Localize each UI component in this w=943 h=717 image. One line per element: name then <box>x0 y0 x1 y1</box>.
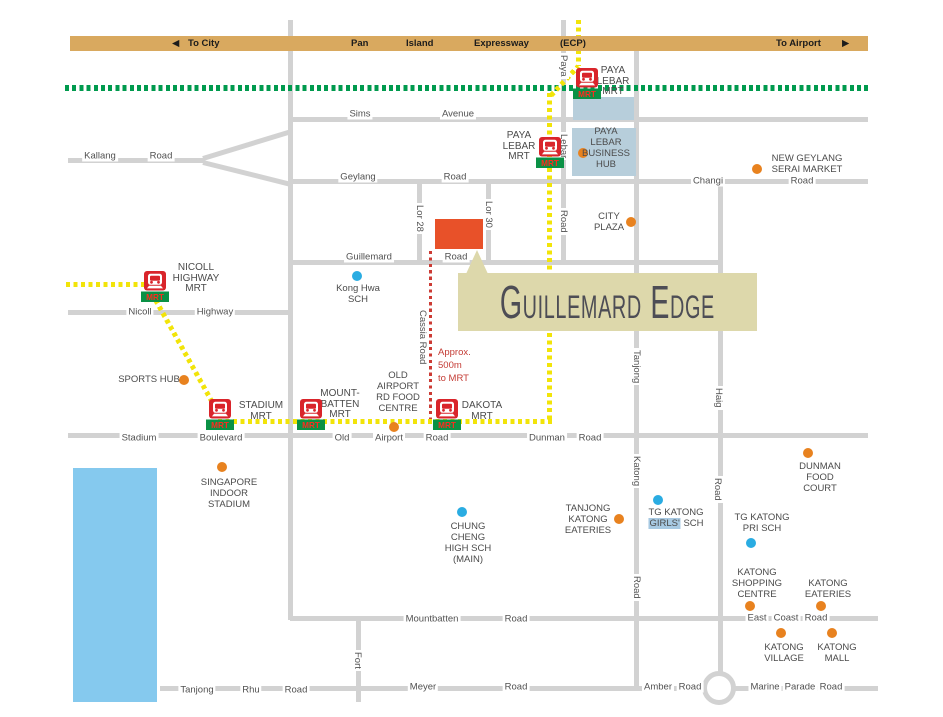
svg-text:MRT: MRT <box>578 90 596 99</box>
svg-text:MRT: MRT <box>211 421 229 430</box>
road-label-road: Road <box>442 172 469 183</box>
expressway-name-expressway: Expressway <box>474 36 529 51</box>
road-kallang-fork-upper <box>202 129 291 161</box>
expressway-band: ◀ To City Pan Island Expressway (ECP) To… <box>70 36 868 51</box>
old-airport-rd-food-centre-label: OLDAIRPORTRD FOODCENTRE <box>376 370 420 414</box>
road-aljunied-road <box>288 20 293 620</box>
road-label-road: Road <box>148 151 175 162</box>
road-label-amber: Amber <box>642 682 674 693</box>
paya-lebar-mrt-interchange-label: PAYALEBARMRT <box>597 66 630 98</box>
paya-lebar-mrt-label: PAYALEBARMRT <box>503 131 536 163</box>
paya-lebar-mrt-icon: MRT <box>536 137 564 168</box>
tg-katong-pri-sch-marker <box>746 538 756 548</box>
katong-village-label: KATONGVILLAGE <box>764 642 804 664</box>
title-callout-pointer <box>466 250 488 274</box>
svg-text:MRT: MRT <box>541 159 559 168</box>
road-kallang-fork-lower <box>202 160 291 187</box>
singapore-indoor-stadium-marker <box>217 462 227 472</box>
road-label-coast: Coast <box>772 613 801 624</box>
dunman-food-court-marker <box>803 448 813 458</box>
tanjong-katong-eateries-marker <box>614 514 624 524</box>
road-label-changi: Changi <box>691 176 725 187</box>
road-label-guillemard: Guillemard <box>344 252 394 263</box>
road-label-v-road: Road <box>712 476 723 503</box>
road-label-east: East <box>745 613 768 624</box>
tg-katong-girls-sch-label: TG KATONGGIRLS' SCH <box>648 507 703 529</box>
road-label-road: Road <box>577 433 604 444</box>
mrt-east-west-line <box>65 85 868 91</box>
road-label-road: Road <box>503 682 530 693</box>
dakota-mrt-icon: MRT <box>433 399 461 430</box>
city-plaza-label: CITYPLAZA <box>594 211 624 233</box>
expressway-name-island: Island <box>406 36 433 51</box>
road-label-geylang: Geylang <box>338 172 377 183</box>
expressway-name-pan: Pan <box>351 36 368 51</box>
road-label-rhu: Rhu <box>240 685 261 696</box>
dunman-food-court-label: DUNMANFOODCOURT <box>799 461 841 494</box>
road-label-old: Old <box>333 433 352 444</box>
road-label-tanjong: Tanjong <box>178 685 215 696</box>
sports-hub-label: SPORTS HUB <box>118 374 180 385</box>
svg-text:MRT: MRT <box>438 421 456 430</box>
project-title-box: Guillemard Edge <box>458 273 757 331</box>
svg-text:MRT: MRT <box>302 421 320 430</box>
mrt-circle-line-west <box>66 282 148 287</box>
walking-distance-note: Approx.500mto MRT <box>438 346 471 385</box>
paya-lebar-business-hub-block-upper <box>573 97 634 120</box>
katong-village-marker <box>776 628 786 638</box>
road-label-v-lor-28: Lor 28 <box>414 203 425 234</box>
dakota-mrt-label: DAKOTAMRT <box>462 401 502 422</box>
paya-lebar-mrt-interchange-icon: MRT <box>573 68 601 99</box>
tg-katong-girls-sch-marker <box>653 495 663 505</box>
road-label-mountbatten: Mountbatten <box>404 614 461 625</box>
svg-text:MRT: MRT <box>146 293 164 302</box>
kong-hwa-sch-label: Kong HwaSCH <box>336 283 380 305</box>
tanjong-katong-eateries-label: TANJONGKATONGEATERIES <box>565 503 611 536</box>
road-label-boulevard: Boulevard <box>198 433 245 444</box>
road-label-parade: Parade <box>783 682 818 693</box>
to-city-arrow-icon: ◀ <box>172 36 179 51</box>
expressway-name-ecp: (ECP) <box>560 36 586 51</box>
road-label-road: Road <box>789 176 816 187</box>
road-label-highway: Highway <box>195 307 235 318</box>
kallang-basin-water <box>73 468 157 702</box>
road-label-nicoll: Nicoll <box>126 307 153 318</box>
road-label-road: Road <box>803 613 830 624</box>
road-label-road: Road <box>818 682 845 693</box>
road-label-sims: Sims <box>347 109 372 120</box>
project-title: Guillemard Edge <box>500 275 715 329</box>
katong-eateries-marker <box>816 601 826 611</box>
road-haig-road <box>718 181 723 690</box>
new-geylang-serai-market-marker <box>752 164 762 174</box>
road-label-road: Road <box>503 614 530 625</box>
sports-hub-marker <box>179 375 189 385</box>
katong-shopping-centre-label: KATONGSHOPPINGCENTRE <box>732 567 782 600</box>
road-label-road: Road <box>424 433 451 444</box>
road-label-v-road: Road <box>558 208 569 235</box>
road-label-stadium: Stadium <box>120 433 159 444</box>
stadium-mrt-icon: MRT <box>206 399 234 430</box>
road-label-v-tanjong: Tanjong <box>631 348 642 385</box>
road-nicoll-highway <box>68 310 292 315</box>
road-label-avenue: Avenue <box>440 109 476 120</box>
katong-eateries-label: KATONGEATERIES <box>805 578 851 600</box>
mountbatten-mrt-icon: MRT <box>297 399 325 430</box>
road-label-v-paya: Paya <box>558 53 569 79</box>
nicoll-highway-mrt-icon: MRT <box>141 271 169 302</box>
road-label-v-fort: Fort <box>352 650 363 671</box>
road-label-v-haig: Haig <box>713 386 724 410</box>
mountbatten-mrt-label: MOUNT-BATTENMRT <box>320 389 359 421</box>
old-airport-rd-food-centre-marker <box>389 422 399 432</box>
singapore-indoor-stadium-label: SINGAPOREINDOORSTADIUM <box>201 477 258 510</box>
road-label-marine: Marine <box>748 682 781 693</box>
road-label-v-lor-30: Lor 30 <box>483 199 494 230</box>
road-stadium-old-airport-dunman-road <box>68 433 868 438</box>
stadium-mrt-label: STADIUMMRT <box>239 401 283 422</box>
kong-hwa-sch-marker <box>352 271 362 281</box>
chung-cheng-high-sch-main-marker <box>457 507 467 517</box>
tg-katong-pri-sch-label: TG KATONGPRI SCH <box>734 512 789 534</box>
new-geylang-serai-market-label: NEW GEYLANGSERAI MARKET <box>772 153 843 175</box>
katong-shopping-centre-marker <box>745 601 755 611</box>
road-label-v-katong: Katong <box>631 454 642 488</box>
to-city-label: To City <box>188 36 220 51</box>
paya-lebar-business-hub-label: PAYALEBARBUSINESSHUB <box>582 126 630 170</box>
chung-cheng-high-sch-main-label: CHUNGCHENGHIGH SCH(MAIN) <box>445 521 491 565</box>
road-label-meyer: Meyer <box>408 682 438 693</box>
road-label-kallang: Kallang <box>82 151 118 162</box>
marine-parade-roundabout <box>702 671 736 705</box>
road-label-dunman: Dunman <box>527 433 567 444</box>
road-label-v-road: Road <box>631 574 642 601</box>
road-label-airport: Airport <box>373 433 405 444</box>
guillemard-edge-site <box>435 219 483 249</box>
location-map: ◀ To City Pan Island Expressway (ECP) To… <box>0 0 943 717</box>
city-plaza-marker <box>626 217 636 227</box>
walking-route-cassia <box>429 251 432 419</box>
nicoll-highway-mrt-label: NICOLLHIGHWAYMRT <box>173 263 220 295</box>
road-label-road: Road <box>677 682 704 693</box>
katong-mall-marker <box>827 628 837 638</box>
to-airport-arrow-icon: ▶ <box>842 36 849 51</box>
road-label-road: Road <box>283 685 310 696</box>
katong-mall-label: KATONGMALL <box>817 642 856 664</box>
road-label-v-cassia-road: Cassia Road <box>417 308 428 366</box>
to-airport-label: To Airport <box>776 36 821 51</box>
